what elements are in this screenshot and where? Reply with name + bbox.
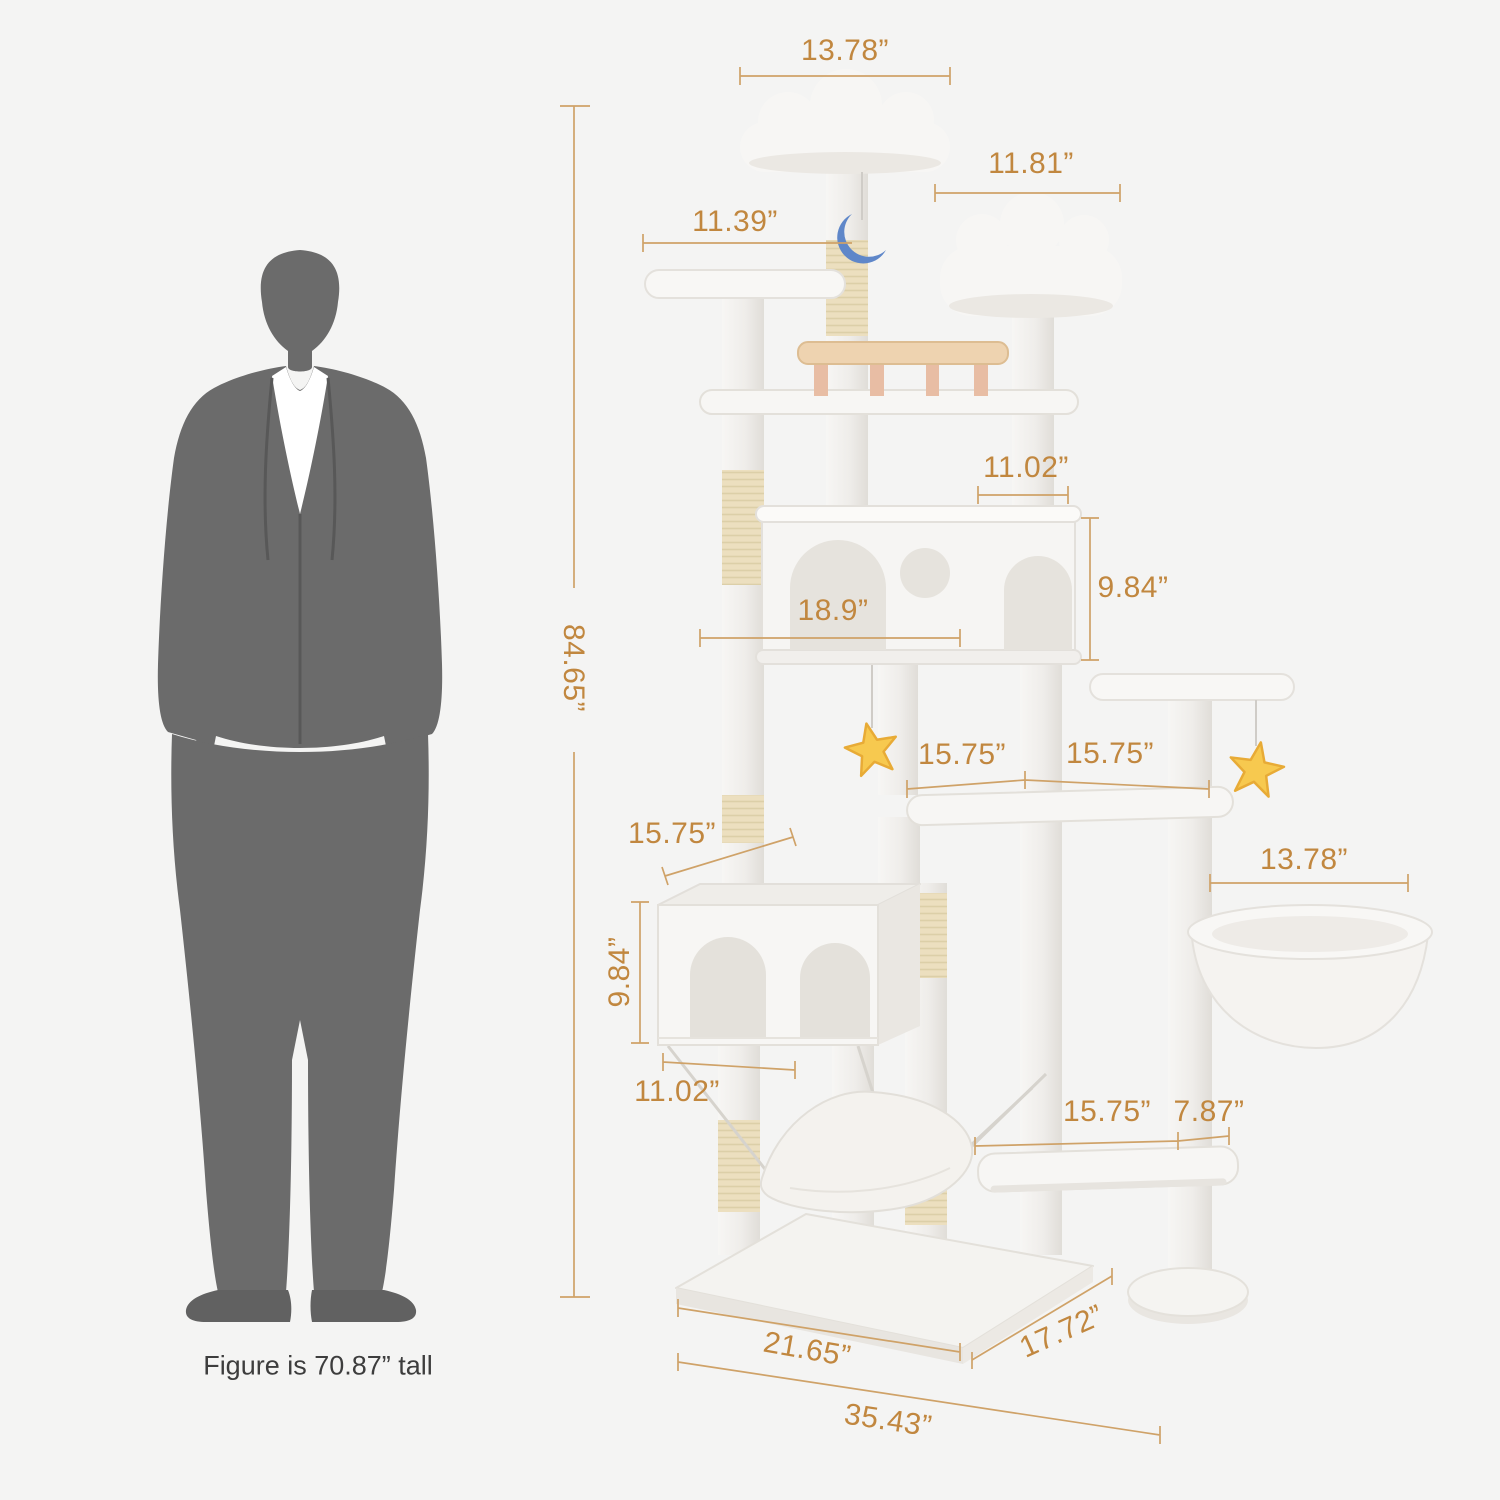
dim-label-lower-condo-height: 9.84”: [603, 937, 637, 1008]
dim-label-total-height: 84.65”: [556, 624, 590, 712]
table-leg: [814, 360, 828, 396]
round-base-top: [1128, 1268, 1248, 1316]
table-leg: [926, 360, 939, 396]
dim-label-mid-platform-left: 15.75”: [918, 738, 1006, 772]
top-cloud-perch: [740, 69, 950, 174]
upper-condo: [756, 506, 1081, 664]
dim-label-lower-condo-depth: 11.02”: [634, 1075, 720, 1109]
table-top: [798, 342, 1008, 364]
dim-label-second-cloud-width: 11.81”: [988, 147, 1074, 181]
pole-under-mid-platform: [878, 817, 920, 885]
wide-platform: [700, 390, 1078, 414]
dim-line-upper-condo-height: [1081, 518, 1099, 660]
dim-label-upper-condo-depth: 11.02”: [983, 451, 1069, 485]
upper-condo-hole: [900, 548, 950, 598]
lower-condo-side: [878, 884, 920, 1045]
dim-label-basket-width: 13.78”: [1260, 843, 1348, 877]
dim-label-bottom-platform-gap: 7.87”: [1174, 1095, 1245, 1129]
dim-label-lower-condo-width: 15.75”: [628, 817, 716, 851]
pole-second-cloud: [1012, 312, 1054, 396]
hammock-fabric: [761, 1092, 972, 1212]
dim-label-upper-condo-width: 18.9”: [798, 594, 869, 628]
pole-right-column: [1168, 695, 1212, 1299]
figure-height-caption: Figure is 70.87” tall: [203, 1351, 433, 1382]
dim-label-bottom-platform-length: 15.75”: [1063, 1095, 1151, 1129]
upper-condo-arch-right: [1004, 556, 1072, 650]
basket-bowl: [1188, 905, 1432, 1048]
sisal-band: [722, 795, 764, 843]
silhouette-shoes: [186, 1290, 416, 1322]
upper-condo-roof: [756, 506, 1081, 522]
cat-tree: [645, 69, 1432, 1364]
bottom-long-platform: [977, 1146, 1238, 1193]
right-top-perch: [1090, 674, 1294, 700]
table-leg: [974, 360, 988, 396]
second-cloud-perch: [940, 192, 1122, 318]
size-chart-diagram: 13.78” 11.81” 11.39” 11.02” 9.84” 18.9” …: [0, 0, 1500, 1500]
pole-under-condo: [878, 665, 918, 795]
silhouette-trousers: [171, 734, 428, 1292]
basket-inner: [1212, 916, 1408, 952]
lower-condo-arch-right: [800, 943, 870, 1038]
dim-label-left-perch-width: 11.39”: [692, 205, 778, 239]
star-toy: [1225, 738, 1287, 799]
human-silhouette: [158, 250, 442, 1322]
dim-label-upper-condo-height: 9.84”: [1098, 571, 1169, 605]
silhouette-head: [261, 250, 340, 372]
pole-top-cloud-lower: [826, 410, 868, 512]
round-pole-base: [1128, 1268, 1248, 1324]
sisal-band: [722, 470, 764, 585]
upper-condo-base-lip: [756, 650, 1081, 664]
lower-condo-top: [658, 884, 920, 905]
dim-label-top-cloud-width: 13.78”: [801, 34, 889, 68]
table-leg: [870, 360, 884, 396]
dim-label-mid-platform-right: 15.75”: [1066, 737, 1154, 771]
left-perch: [645, 270, 845, 298]
lower-condo-arch-left: [690, 937, 766, 1038]
lower-condo: [658, 884, 920, 1045]
